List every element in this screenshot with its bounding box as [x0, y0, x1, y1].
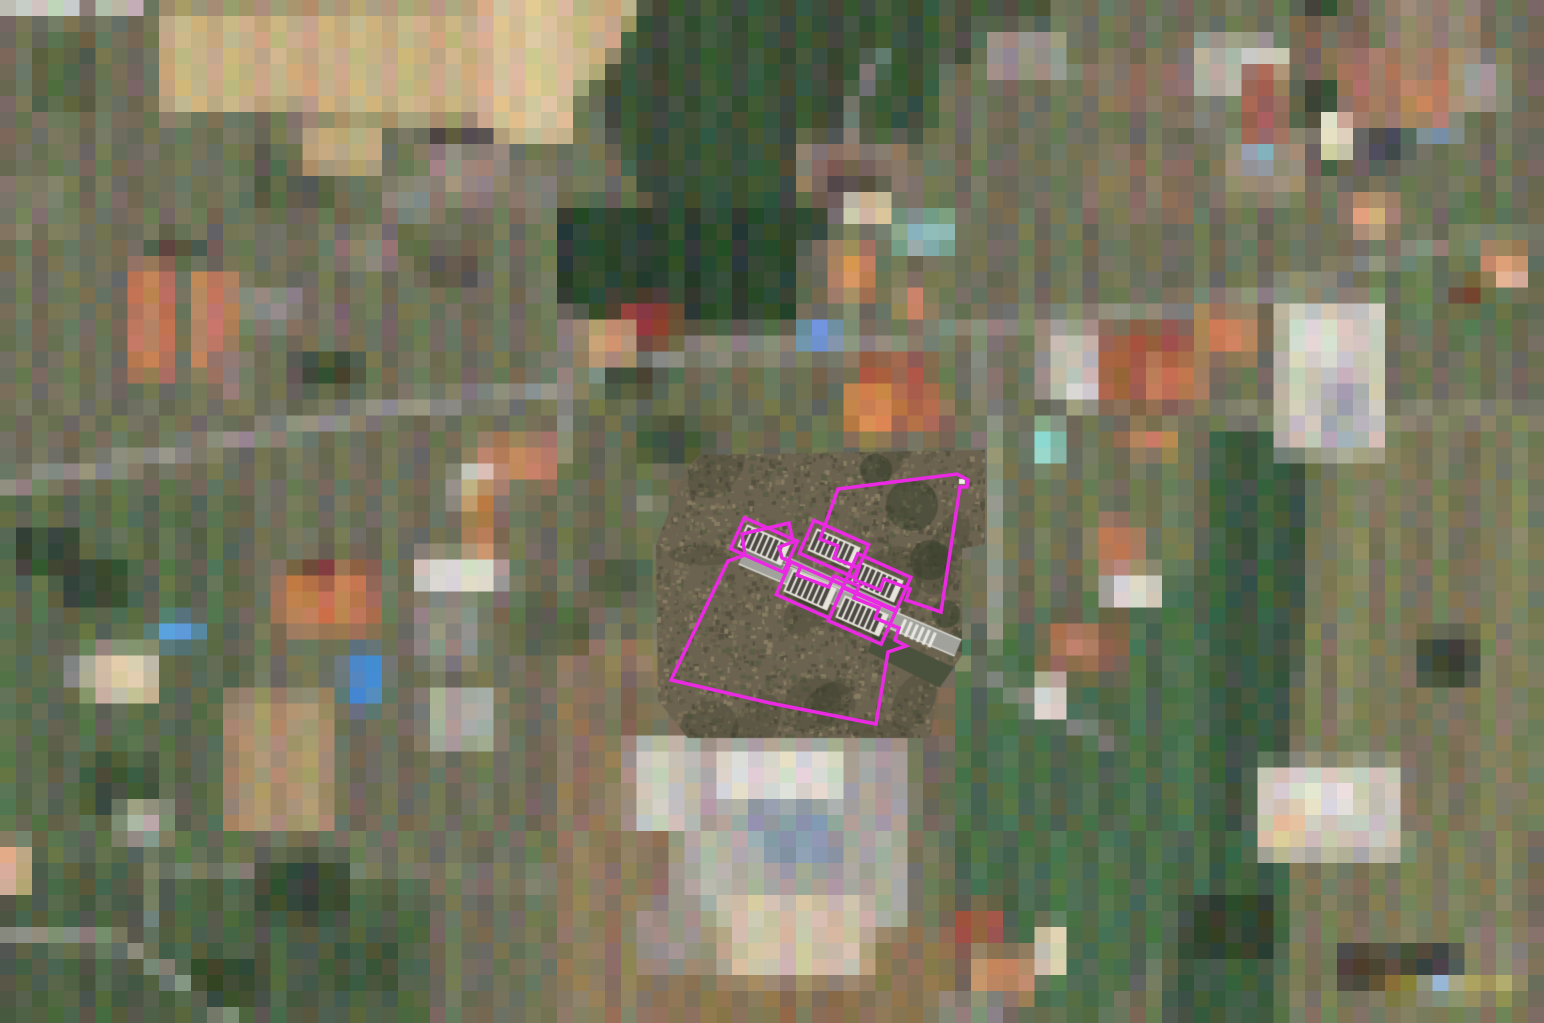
satellite-map-view[interactable]: [0, 0, 1544, 1023]
parcel-boundary-overlay: [0, 0, 1544, 1023]
stall-row-boundary-5[interactable]: [828, 588, 896, 644]
parcel-south[interactable]: [671, 523, 906, 724]
